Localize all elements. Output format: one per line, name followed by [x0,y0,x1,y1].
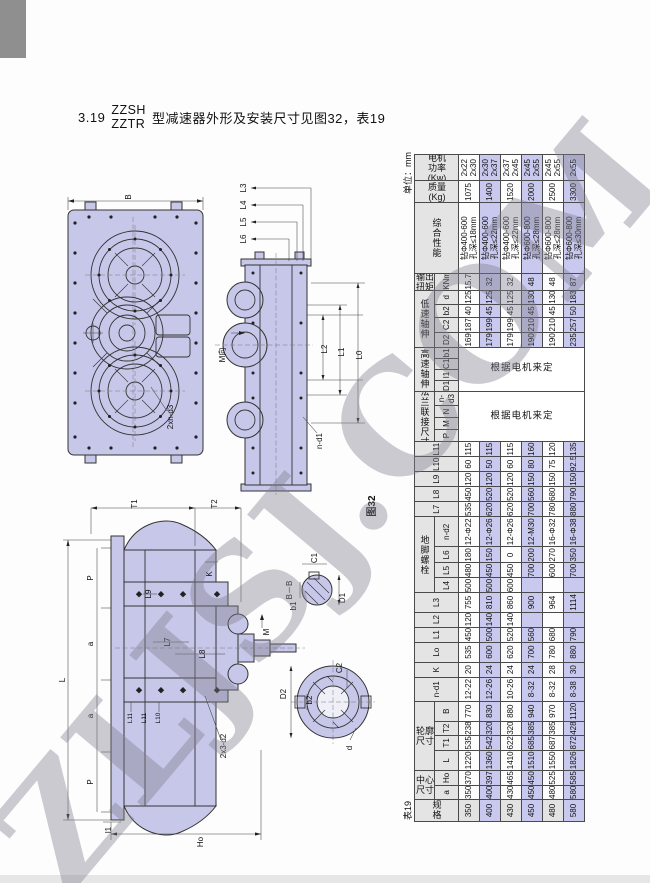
table-cell: 790 [564,487,585,502]
table-cell: 140 [480,612,501,627]
table-cell: 687 [543,735,564,750]
table-subheader-cell: L [435,750,459,770]
table-cell: 450 [459,627,480,642]
table-cell: 700 [522,563,543,578]
table-cell: 480 [543,799,564,821]
table-cell: 1410 [501,750,522,770]
table-cell: 450 [459,487,480,502]
table-header-cell: L9 [415,472,459,487]
table-cell: 12-Φ22 [459,517,480,547]
table-header-cell: L3 [415,593,459,612]
dim-label-a-bottom: a [86,713,95,718]
dim-label-l1: l1 [104,826,113,833]
dim-label-T2: T2 [210,499,219,509]
table-cell: 179 [501,332,522,347]
dim-label-D2: D2 [279,688,288,699]
table-subheader-cell: L6 [435,547,459,563]
table-cell: 1075 [459,181,480,203]
table-cell: 钻Φ600-800 孔深≤28mm [543,203,564,273]
catalog-page: 3.19 ZZSH ZZTR 型减速器外形及安装尺寸见图32，表19 [0,0,650,883]
table-cell: 钻Φ600-800 孔深≤28mm [522,203,543,273]
table-header-cell: K [415,662,459,677]
table-cell: 钻Φ400-600 孔深≤22mm [501,203,522,273]
table-cell: 860 [501,593,522,612]
table-cell: 180 [459,547,480,563]
table-cell: 350 [459,799,480,821]
table-cell: 160 [522,442,543,457]
table-cell: 24 [501,662,522,677]
table-header-cell: 轮廓 尺寸 [415,701,435,770]
table-cell: 320 [480,721,501,735]
dims-L0-L2: L2 L1 L0 [307,283,365,423]
figure-front-view: 图32 L P a a P [55,490,410,855]
table-cell: 187 [459,317,480,332]
table-cell: 210 [543,317,564,332]
table-cell: 1114 [564,593,585,612]
table-cell [543,578,564,593]
column-group-label: L2 [432,615,441,624]
dim-label-b2: b2 [305,695,314,704]
table-row: 48048052515506873859708-3228780680964600… [543,155,564,822]
column-group-label: 轮廓 尺寸 [415,726,433,746]
table-subheader-cell: D2 [435,332,459,347]
dim-label-L6: L6 [239,234,248,243]
table-cell: 2x30 2x37 [480,155,501,181]
table-header-cell: L7 [415,502,459,517]
table-cell: 28 [543,662,564,677]
motor-dependent-cell: 根据电机来定 [459,392,585,442]
table-cell: 480 [459,563,480,578]
dim-label-L7: L7 [163,637,172,646]
table-cell: 120 [459,472,480,487]
dim-label-a-top: a [86,641,95,646]
table-cell: 2x45 2x55 [543,155,564,181]
table-cell: 8-38 [564,677,585,701]
column-group-label: 电机 功率 (Kw) [427,155,446,181]
table-cell: 190 [543,332,564,347]
table-cell: 700 [564,563,585,578]
table-cell: 12-M30 [522,517,543,547]
table-cell: 钻Φ400-600 孔深≤22mm [480,203,501,273]
table-cell: 620 [501,502,522,517]
table-cell: 430 [501,785,522,799]
column-group-label: 规 格 [432,800,441,820]
table-cell: 24 [522,662,543,677]
table-cell: 700 [522,642,543,662]
table-cell: 50 [564,304,585,317]
dim-label-holes: 2x3-d2 [219,733,228,758]
table-cell: 830 [480,701,501,721]
table-cell: 520 [501,487,522,502]
table-cell: 350 [564,547,585,563]
column-group-label: 综 合 性 能 [432,218,441,258]
table-cell: 45 [480,304,501,317]
table-cell: 30 [564,662,585,677]
table-cell: 400 [480,785,501,799]
table-cell: 500 [480,578,501,593]
table-header-cell: L1 [415,627,459,642]
table-cell: 8-32 [543,677,564,701]
table-cell: 115 [459,442,480,457]
column-group-label: L7 [432,505,441,514]
table-subheader-cell: a [435,785,459,799]
dim-label-P-top: P [86,575,95,580]
table-cell: 880 [564,642,585,662]
table-cell: 385 [522,721,543,735]
table-header-cell: 法 兰 联 接 尺 寸 [415,392,435,442]
table-cell: 880 [564,502,585,517]
table-cell: 2x22 2x30 [459,155,480,181]
table-cell: 580 [564,799,585,821]
table-cell: 600 [480,642,501,662]
table-cell: 780 [543,502,564,517]
table-cell: 520 [501,627,522,642]
table-cell: 535 [459,642,480,662]
table-subheader-cell: T1 [435,735,459,750]
table-cell: 140 [501,612,522,627]
table-subheader-cell: d [435,290,459,304]
table-cell: 1510 [522,750,543,770]
column-group-label: L8 [432,490,441,499]
dim-label-C2: C2 [335,662,344,673]
table-cell: 810 [480,593,501,612]
section-heading: 3.19 ZZSH ZZTR 型减速器外形及安装尺寸见图32，表19 [78,104,385,131]
table-cell: 2000 [522,181,543,203]
model-codes: ZZSH ZZTR [111,104,146,131]
table-cell: 12-Φ26 [480,517,501,547]
table-header-cell: 地 脚 螺 栓 [415,517,435,593]
table-header-cell: L8 [415,487,459,502]
table-cell: 48 [522,273,543,290]
table-cell: 16-Φ38 [564,517,585,547]
table-cell: 87 [564,273,585,290]
table-cell: 780 [543,642,564,662]
dim-label-B: B [124,194,133,199]
table-header-cell: n-d1 [415,677,459,701]
table-cell: 120 [501,472,522,487]
table-header-cell: 中心 尺寸 [415,770,435,799]
dim-label-b1: b1 [289,601,298,610]
section-B-B: B－B C1 b1 D1 [285,552,347,610]
table-cell: 235 [564,332,585,347]
table-subheader-cell: M [435,418,459,430]
table-caption: 表19 [401,801,414,820]
table-cell: 1360 [480,750,501,770]
table-cell: 15.7 [459,273,480,290]
table-cell: 270 [543,547,564,563]
table-cell: 600 [543,563,564,578]
table-cell: 125 [501,290,522,304]
table-subheader-cell: b1 [435,347,459,358]
table-cell: 125 [459,290,480,304]
table-cell: 2x45 2x55 [522,155,543,181]
table-cell [564,612,585,627]
column-group-label: 中心 尺寸 [415,775,433,795]
dim-label-K: K [205,571,214,577]
table-cell: 199 [480,317,501,332]
table-cell: 130 [543,290,564,304]
table-header-cell: L2 [415,612,459,627]
table-cell: 2x55 [564,155,585,181]
column-group-label: 输出 扭矩 [415,273,433,290]
table-cell: 115 [480,442,501,457]
table-cell: 525 [543,770,564,785]
dim-label-n-d1: n-d1 [315,432,324,449]
dim-label-d: d [345,746,354,750]
table-cell: 790 [564,627,585,642]
table-cell [543,612,564,627]
table-cell: 40 [459,304,480,317]
table-cell: 535 [459,502,480,517]
dim-label-M: M [262,628,271,635]
table-subheader-cell: D1 [435,380,459,391]
table-cell: 500 [480,627,501,642]
table-cell: 480 [543,785,564,799]
table-cell: 92.5 [564,457,585,472]
table-cell: 20 [459,662,480,677]
dim-label-L: L [58,677,67,682]
column-group-label: L11 [432,443,441,456]
table-cell: 50 [480,457,501,472]
table-cell [522,612,543,627]
table-subheader-cell: L5 [435,563,459,578]
table-subheader-cell: T2 [435,721,459,735]
table-cell: 964 [543,593,564,612]
table-cell: 940 [522,701,543,721]
table-cell: 560 [522,627,543,642]
dim-label-L0: L0 [355,350,364,359]
table-cell: 179 [480,332,501,347]
column-group-label: 质量 (Kg) [427,182,445,202]
table-cell: 535 [459,735,480,750]
table-cell: 150 [564,472,585,487]
table-cell: 580 [564,785,585,799]
table-cell: 8-32 [522,677,543,701]
table-cell: 770 [459,701,480,721]
table-cell: 450 [480,563,501,578]
table-cell: 115 [501,442,522,457]
table-cell: 169 [459,332,480,347]
table-header-cell: 电机 功率 (Kw) [415,155,459,181]
table-cell: 80 [522,457,543,472]
section-bb-title: B－B [285,581,294,600]
table-subheader-cell: l1 [435,369,459,380]
dim-label-Ho: Ho [196,836,205,847]
table-cell: 680 [543,627,564,642]
table-cell: 320 [501,721,522,735]
table-cell: 450 [522,770,543,785]
table-cell: 370 [459,770,480,785]
column-group-label: 高 速 轴 伸 [420,349,429,389]
dim-label-M-dir: M向 [217,348,227,363]
scan-edge [0,875,650,883]
table-cell: 900 [522,593,543,612]
table-header-cell: L11 [415,442,459,457]
table-cell: 32 [501,273,522,290]
table-cell: 755 [459,593,480,612]
table-cell: 150 [522,472,543,487]
table-cell: 450 [501,563,522,578]
table-cell: 2x37 2x45 [501,155,522,181]
dim-label-T1: T1 [130,499,139,509]
table-cell [522,578,543,593]
table-cell: 0 [501,547,522,563]
table-cell: 585 [564,770,585,785]
table-cell [564,578,585,593]
table-cell: 200 [522,547,543,563]
column-group-label: L10 [432,458,441,471]
table-cell: 3300 [564,181,585,203]
column-group-label: 法 兰 联 接 尺 寸 [420,392,429,442]
column-group-label: L3 [432,598,441,607]
table-cell: 150 [543,472,564,487]
table-cell: 1550 [543,750,564,770]
table-19-rotated: 表19 单位：mm 规 格中心 尺寸轮廓 尺寸n-d1KLoL1L2L3地 脚 … [400,150,586,822]
table-cell: 199 [501,317,522,332]
table-cell: 210 [522,317,543,332]
figure-caption: 图32 [366,495,378,517]
table-cell: 10-26 [501,677,522,701]
table-cell: 872 [564,735,585,750]
table-row: 580580585182687242811208-383088079011147… [564,155,585,822]
heading-text: 型减速器外形及安装尺寸见图32，表19 [152,108,385,127]
table-cell: 430 [501,799,522,821]
table-cell: 500 [459,578,480,593]
gearbox-side-view [215,252,313,495]
table-subheader-cell: Ho [435,770,459,785]
table-cell: 12-22 [459,677,480,701]
table-cell: 1400 [480,181,501,203]
table-cell: 12-26 [480,677,501,701]
table-subheader-cell: n-d3 [435,392,459,406]
dim-label-P-bottom: P [86,779,95,784]
dimension-table: 规 格中心 尺寸轮廓 尺寸n-d1KLoL1L2L3地 脚 螺 栓L7L8L9L… [414,154,585,822]
table-cell: 560 [522,487,543,502]
table-subheader-cell: KNm [435,273,459,290]
table-subheader-cell: N [435,406,459,418]
table-header-cell: 低 速 轴 伸 [415,290,435,347]
table-cell: 238 [459,721,480,735]
output-shaft-detail: C2 D2 b2 d [279,660,375,750]
table-cell: 397 [480,770,501,785]
column-group-label: L9 [432,475,441,484]
table-cell: 1520 [501,181,522,203]
table-subheader-cell: L4 [435,578,459,593]
table-cell: 135 [564,442,585,457]
table-cell: 620 [501,642,522,662]
table-cell: 520 [480,487,501,502]
table-cell: 钻Φ400-600 孔深≤18mm [459,203,480,273]
table-cell: 120 [480,472,501,487]
table-cell: 130 [522,290,543,304]
dim-label-L1: L1 [337,347,346,356]
table-cell: 120 [543,442,564,457]
dim-label-bolt-callout: 2xn-d3 [166,404,175,429]
dim-label-L11a: L11 [127,712,134,723]
table-cell: 12-Φ26 [501,517,522,547]
table-subheader-cell: C2 [435,317,459,332]
table-header-cell: 输出 扭矩 [415,273,435,290]
table-cell: 125 [480,290,501,304]
section-number: 3.19 [78,110,105,125]
table-cell: 60 [501,457,522,472]
table-cell: 600 [501,578,522,593]
table-subheader-cell: b2 [435,304,459,317]
table-unit-note: 单位：mm [401,152,414,194]
motor-note: 根据电机来定 [490,411,553,422]
table-cell: 680 [543,487,564,502]
scan-corner-artifact [0,0,26,58]
table-cell: 60 [459,457,480,472]
table-cell: 1220 [459,750,480,770]
table-cell: 450 [522,785,543,799]
table-cell: 700 [522,502,543,517]
table-header-cell: 高 速 轴 伸 [415,347,435,391]
table-row: 350350370122053523877012-222053545012075… [459,155,480,822]
model-code-top: ZZSH [111,104,146,118]
table-cell: 190 [522,332,543,347]
table-cell: 428 [564,721,585,735]
table-cell: 183 [564,290,585,304]
table-cell: 48 [543,273,564,290]
table-header-cell: 综 合 性 能 [415,203,459,273]
column-group-label: 低 速 轴 伸 [420,299,429,339]
table-row: 430430465141062232088010-262462052014086… [501,155,522,822]
dim-label-L4: L4 [239,200,248,209]
table-cell: 16-Φ32 [543,517,564,547]
table-cell: 24 [480,662,501,677]
table-cell: 622 [501,735,522,750]
table-row: 400400397136054232083012-262460050014081… [480,155,501,822]
view-direction-M-arrow: M [260,614,271,635]
table-cell: 450 [522,799,543,821]
table-row: 45045045015106853859408-3224700560900700… [522,155,543,822]
table-cell: 45 [501,304,522,317]
table-cell: 45 [522,304,543,317]
table-subheader-cell: C1 [435,358,459,369]
figure-top-views: B 2xn-d3 L3 [55,165,410,515]
table-cell: 880 [501,701,522,721]
gearbox-front-body [111,521,305,835]
column-group-label: L1 [432,630,441,639]
dim-label-D1: D1 [338,592,347,603]
dim-label-L10: L10 [155,712,162,723]
dim-label-L3: L3 [239,183,248,192]
table-cell: 钻Φ600-800 孔深≤30mm [564,203,585,273]
dim-label-L9: L9 [144,589,153,598]
table-cell: 465 [501,770,522,785]
dim-label-L11b: L11 [141,712,148,723]
table-cell: 542 [480,735,501,750]
dim-label-L2: L2 [320,344,329,353]
model-code-bottom: ZZTR [111,118,146,132]
dims-L3-L6: L3 L4 L5 L6 [239,183,311,261]
table-cell: 1826 [564,750,585,770]
table-cell: 1120 [564,701,585,721]
dim-label-C1: C1 [310,552,319,563]
table-subheader-cell: B [435,701,459,721]
table-cell: 75 [543,457,564,472]
table-header-cell: L10 [415,457,459,472]
column-group-label: K [432,667,441,672]
motor-note: 根据电机来定 [490,364,553,375]
dim-label-L8: L8 [198,649,207,658]
table-cell: 400 [480,799,501,821]
table-header-cell: 规 格 [415,799,459,821]
table-cell: 685 [522,735,543,750]
table-cell: 970 [543,701,564,721]
table-cell: 120 [459,612,480,627]
